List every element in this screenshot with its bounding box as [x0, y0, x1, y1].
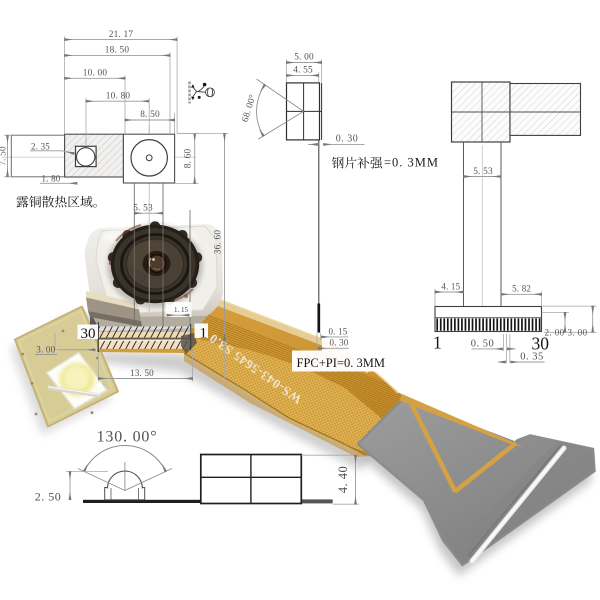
svg-text:0. 30: 0. 30	[336, 134, 359, 145]
svg-text:130. 00°: 130. 00°	[97, 429, 158, 446]
svg-text:1. 15: 1. 15	[174, 306, 189, 314]
svg-text:10. 80: 10. 80	[106, 91, 131, 101]
svg-text:0. 30: 0. 30	[330, 338, 349, 348]
svg-text:3. 00: 3. 00	[36, 344, 55, 354]
svg-text:0. 15: 0. 15	[329, 326, 348, 336]
svg-text:1: 1	[433, 333, 442, 353]
svg-text:5. 53: 5. 53	[133, 203, 153, 213]
svg-text:3. 00: 3. 00	[568, 327, 588, 337]
svg-text:8. 60: 8. 60	[184, 149, 194, 169]
svg-text:30: 30	[81, 326, 96, 342]
svg-text:2. 00: 2. 00	[545, 327, 565, 337]
svg-text:5. 82: 5. 82	[512, 284, 531, 294]
svg-text:4. 40: 4. 40	[336, 466, 350, 494]
svg-text:0. 35: 0. 35	[520, 351, 544, 362]
svg-text:13. 50: 13. 50	[130, 368, 154, 378]
svg-text:10. 00: 10. 00	[83, 69, 108, 79]
svg-text:1. 80: 1. 80	[42, 173, 61, 183]
svg-text:7. 50: 7. 50	[0, 146, 9, 166]
svg-text:1: 1	[200, 326, 208, 342]
svg-text:18. 50: 18. 50	[105, 46, 130, 56]
svg-text:5. 53: 5. 53	[473, 167, 493, 177]
svg-text:8. 50: 8. 50	[140, 110, 160, 120]
svg-text:0. 50: 0. 50	[471, 338, 495, 349]
svg-text:4. 55: 4. 55	[293, 66, 313, 76]
svg-text:2. 35: 2. 35	[31, 141, 50, 151]
svg-text:5. 00: 5. 00	[294, 53, 314, 63]
svg-text:21. 17: 21. 17	[109, 30, 134, 40]
svg-text:2. 50: 2. 50	[35, 490, 62, 504]
svg-text:FPC+PI=0. 3MM: FPC+PI=0. 3MM	[297, 356, 385, 370]
svg-text:=0. 3MM: =0. 3MM	[384, 155, 439, 169]
svg-text:4. 15: 4. 15	[441, 281, 460, 291]
svg-text:36. 60: 36. 60	[213, 230, 223, 255]
